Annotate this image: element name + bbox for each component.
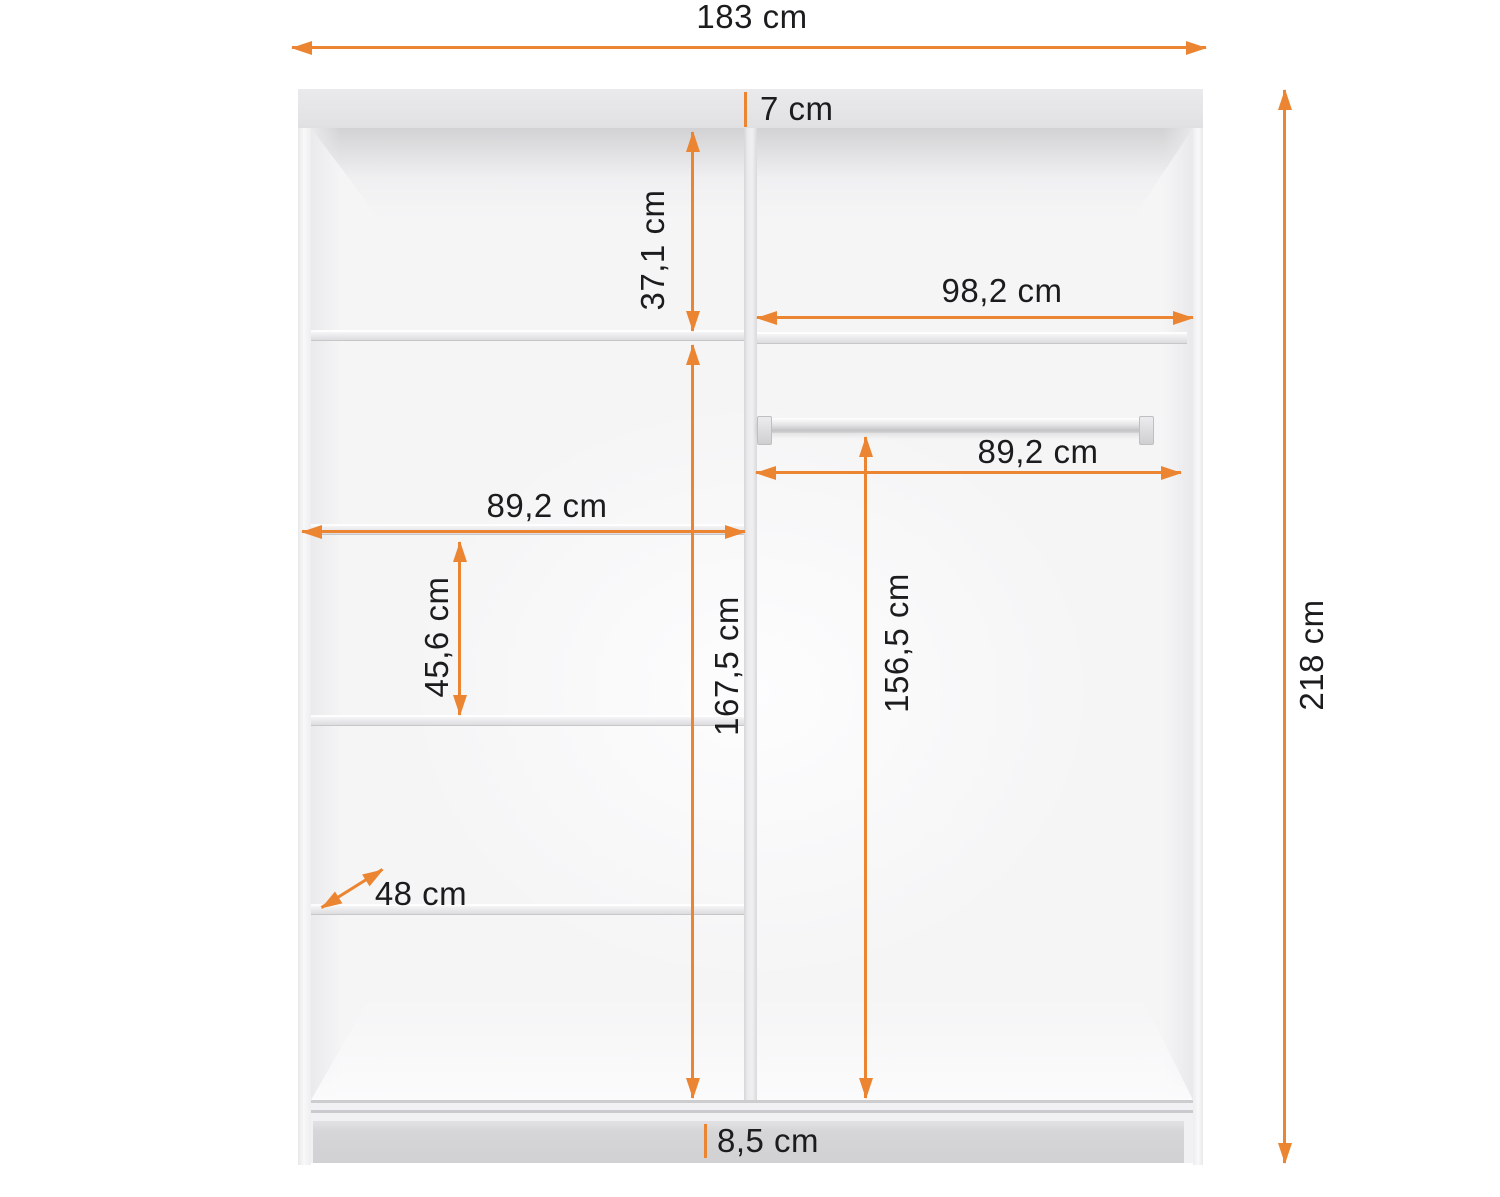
left-compartment [311, 128, 744, 1100]
label-total-height: 218 cm [1293, 599, 1331, 710]
base-molding-line [311, 1110, 1193, 1113]
dimension-arrow-rail-width [756, 471, 1181, 474]
dimension-arrow-total-height [1283, 90, 1286, 1163]
label-upper-section-height: 37,1 cm [634, 190, 672, 311]
dimension-arrow-left-section-height [691, 345, 694, 1098]
hanging-rail [757, 418, 1148, 433]
base-bottom-edge [311, 1163, 1193, 1165]
left-shelf-1 [311, 332, 744, 341]
label-depth: 48 cm [375, 875, 467, 913]
left-wall-shading [311, 128, 341, 1100]
label-rail-clearance-height: 156,5 cm [878, 573, 916, 713]
floor-highlight-left [311, 995, 744, 1100]
label-total-width: 183 cm [696, 0, 807, 36]
right-wall-shading [1163, 128, 1193, 1100]
wardrobe-dimension-diagram: 183 cm 218 cm 7 cm 37,1 cm 98,2 cm 89,2 … [0, 0, 1500, 1197]
wardrobe-top-panel [298, 89, 1203, 130]
label-rail-section-width: 89,2 cm [978, 433, 1099, 471]
ceiling-shadow-right [757, 128, 1193, 220]
rail-bracket-left [757, 416, 772, 445]
right-side-panel [1193, 128, 1203, 1165]
label-plinth-height: 8,5 cm [717, 1122, 819, 1160]
dimension-arrow-shelf-spacing [458, 542, 461, 715]
left-side-panel [298, 128, 311, 1165]
dimension-arrow-rail-clearance [864, 437, 867, 1098]
dimension-arrow-upper-section [691, 132, 694, 331]
left-shelf-3 [311, 717, 744, 726]
label-top-panel-thickness: 7 cm [760, 90, 834, 128]
rail-bracket-right [1139, 416, 1154, 445]
floor-front-edge [311, 1100, 1193, 1103]
label-left-section-height: 167,5 cm [708, 596, 746, 736]
ceiling-shadow-left [311, 128, 744, 220]
label-right-upper-width: 98,2 cm [942, 272, 1063, 310]
label-shelf-spacing: 45,6 cm [418, 577, 456, 698]
dimension-tick-plinth [704, 1124, 707, 1158]
dimension-arrow-right-upper-width [757, 316, 1193, 319]
dimension-tick-top-panel [744, 92, 747, 127]
dimension-arrow-total-width [292, 46, 1206, 49]
floor-highlight-right [757, 995, 1193, 1100]
dimension-arrow-left-shelf-width [302, 530, 745, 533]
label-left-shelf-width: 89,2 cm [487, 487, 608, 525]
right-shelf [757, 334, 1187, 344]
